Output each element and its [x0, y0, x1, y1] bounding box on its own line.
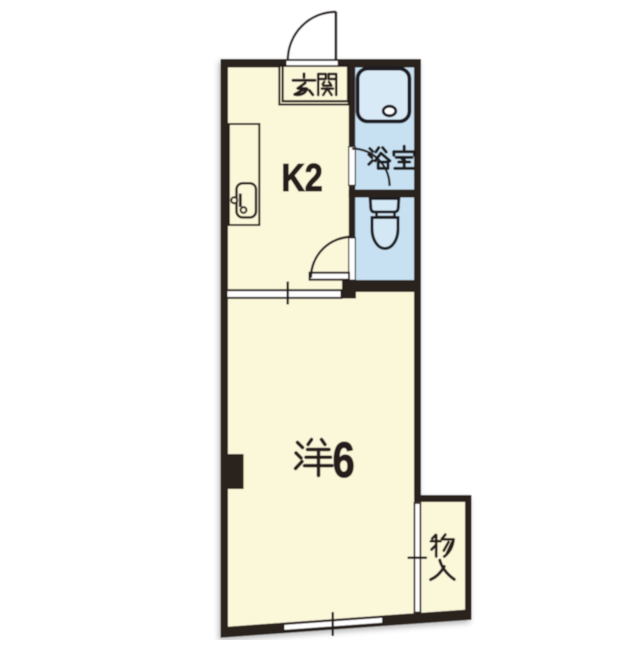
svg-text:K2: K2: [281, 156, 322, 200]
svg-text:6: 6: [332, 432, 354, 488]
